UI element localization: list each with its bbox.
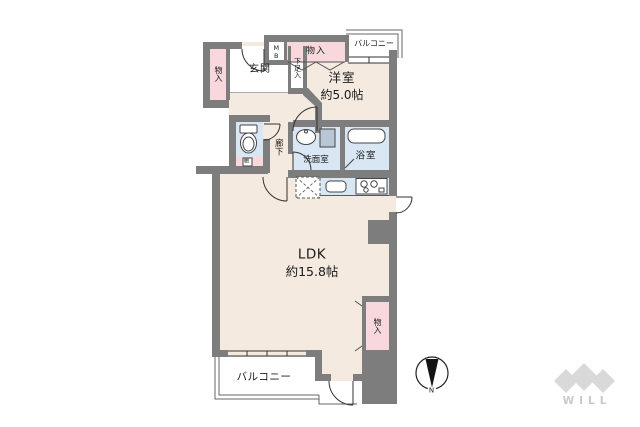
bathroom-label: 浴室 [355,151,376,161]
bathtub-icon [348,129,385,143]
washer-space-icon [320,129,335,147]
closet-bedroom-label: 物入 [306,48,326,57]
brand-logo-text: WILL [563,396,612,407]
balcony-top-label: バルコニー [354,40,394,48]
shoe-storage-label: 下足入 [294,58,301,79]
balcony-bottom-label: バルコニー [237,372,292,383]
compass-north-label: N [428,388,436,395]
corridor-label: 廊下 [274,139,283,156]
ldk-area-label: 約15.8帖 [286,266,339,279]
washroom-label: 洗面室 [303,156,329,165]
bedroom-area-label: 約5.0帖 [320,89,363,101]
floorplan-page: 玄関 下足入 物入 MB 物入 バルコニー 洋室 約5.0帖 廊下 棚 洗面室 … [0,0,640,427]
entrance-label: 玄関 [249,65,271,75]
refrigerator-box [296,177,320,198]
ldk-label: LDK [298,248,326,262]
closet-ldk-label: 物入 [373,318,381,334]
meter-box-label: MB [273,44,280,60]
stove-icon [356,179,387,195]
closet-entrance-label: 物入 [214,66,222,82]
kitchen-service-door-arc [396,197,412,213]
compass-icon [416,357,448,389]
kitchen-sink-icon [326,181,346,192]
brand-logo-icon [554,363,615,393]
bedroom-label: 洋室 [328,72,355,85]
balcony-exit-door-arc [329,381,353,405]
toilet-shelf-label: 棚 [244,160,250,165]
floorplan-graphic [0,0,640,427]
washbasin-icon [297,130,316,145]
